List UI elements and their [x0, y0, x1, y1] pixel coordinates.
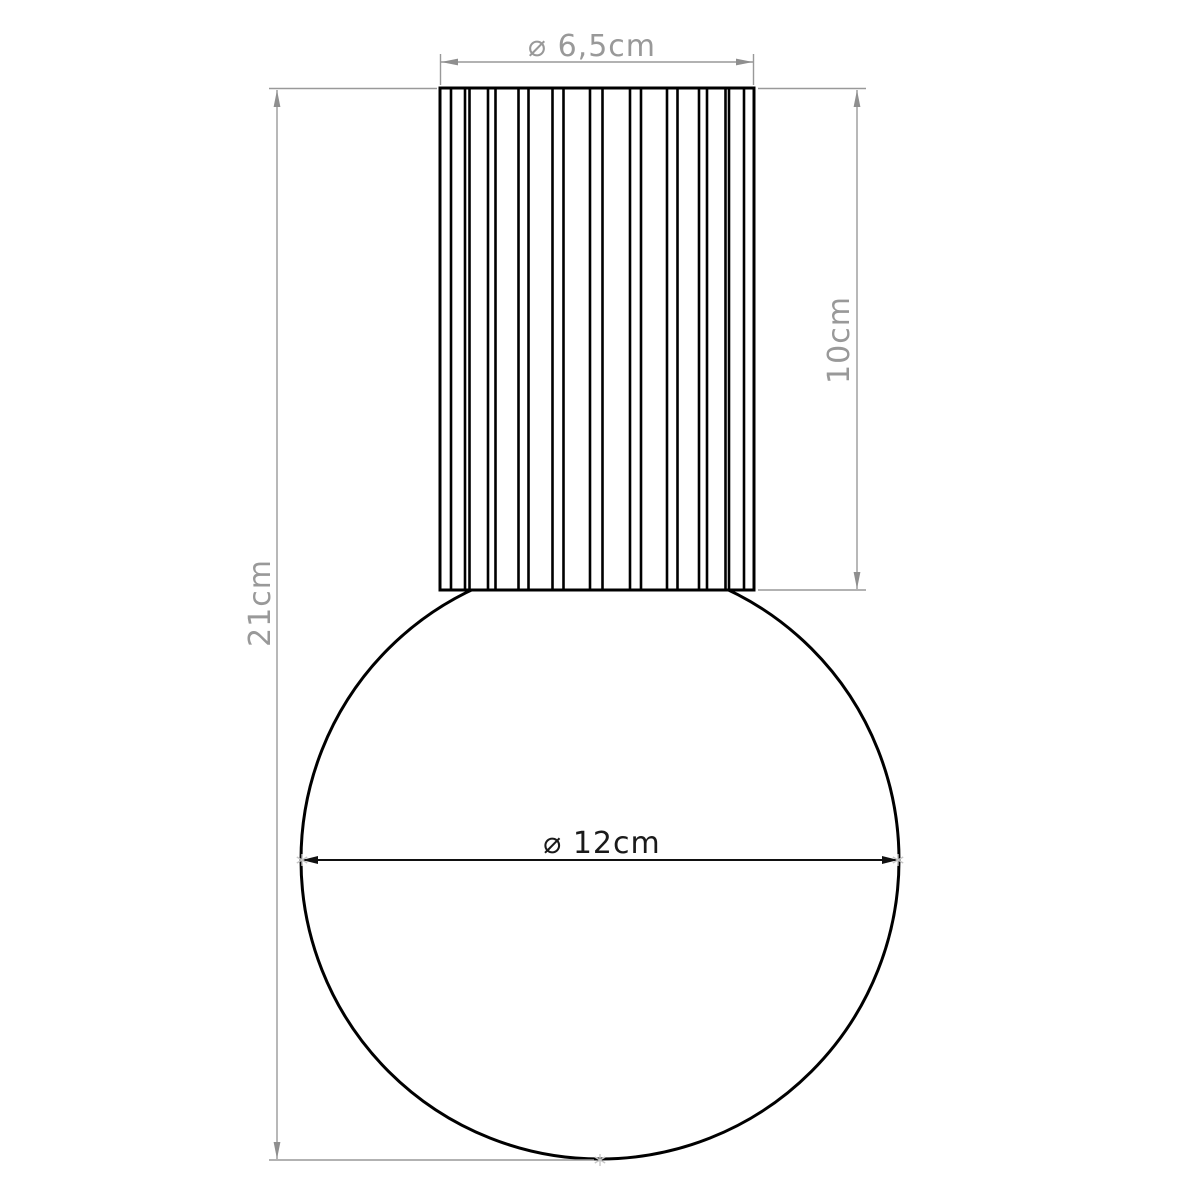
arrowhead-down — [854, 572, 861, 589]
arrowhead-right — [882, 856, 898, 864]
arrowhead-up — [854, 90, 861, 107]
cylinder-height-label: 10cm — [822, 296, 857, 384]
arrowhead-down — [274, 1142, 281, 1159]
cylinder-diameter-label: ⌀ 6,5cm — [528, 29, 656, 64]
globe-diameter-label: ⌀ 12cm — [543, 826, 661, 861]
fluted-cylinder — [440, 88, 754, 590]
technical-drawing-canvas: ⌀ 6,5cm 10cm 21cm ⌀ 12cm — [0, 0, 1200, 1200]
arrowhead-left — [302, 856, 318, 864]
dimension-globe-diameter: ⌀ 12cm — [302, 826, 898, 864]
arrowhead-left — [441, 59, 458, 66]
overall-height-label: 21cm — [243, 559, 278, 647]
dimension-cylinder-height: 10cm — [758, 89, 866, 591]
lamp-dimension-drawing: ⌀ 6,5cm 10cm 21cm ⌀ 12cm — [0, 0, 1200, 1200]
arrowhead-up — [274, 90, 281, 107]
dimension-cylinder-diameter: ⌀ 6,5cm — [441, 29, 754, 85]
arrowhead-right — [736, 59, 753, 66]
